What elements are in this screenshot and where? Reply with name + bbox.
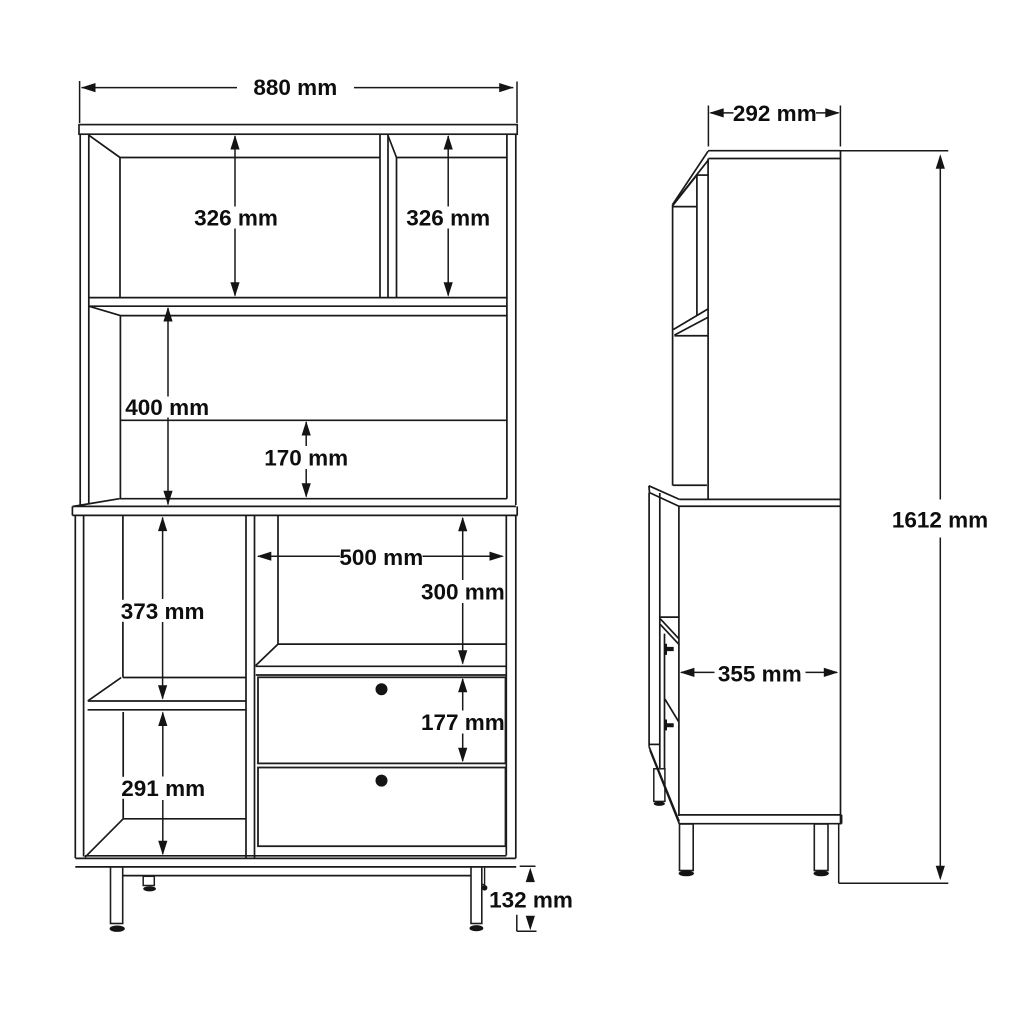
svg-text:326 mm: 326 mm xyxy=(406,206,490,231)
svg-text:300 mm: 300 mm xyxy=(421,580,505,605)
svg-text:1612 mm: 1612 mm xyxy=(892,508,988,533)
svg-text:132 mm: 132 mm xyxy=(489,887,573,912)
svg-text:500 mm: 500 mm xyxy=(339,545,423,570)
svg-text:400 mm: 400 mm xyxy=(125,395,209,420)
svg-text:373 mm: 373 mm xyxy=(121,599,205,624)
svg-text:292 mm: 292 mm xyxy=(733,101,817,126)
svg-text:880 mm: 880 mm xyxy=(253,75,337,100)
svg-text:291 mm: 291 mm xyxy=(121,776,205,801)
svg-text:170 mm: 170 mm xyxy=(264,446,348,471)
svg-text:326 mm: 326 mm xyxy=(194,206,278,231)
svg-text:355 mm: 355 mm xyxy=(718,661,802,686)
svg-text:177 mm: 177 mm xyxy=(421,710,505,735)
